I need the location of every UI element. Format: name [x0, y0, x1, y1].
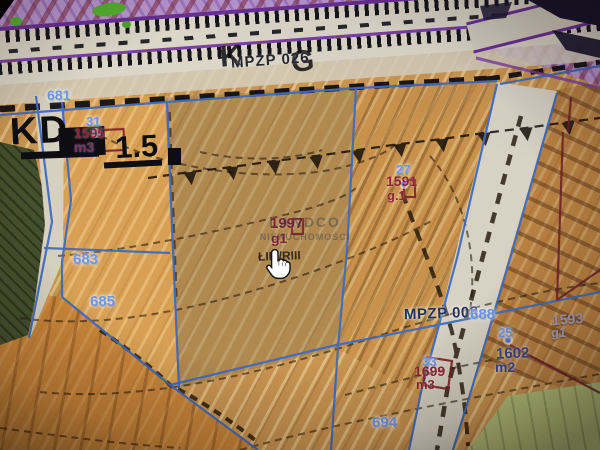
- annotation-1591: 1591: [386, 174, 417, 188]
- point-number-25: 25: [498, 326, 512, 339]
- annotation-1699: 1699: [414, 364, 445, 378]
- watermark-line2: NIERUCHOMOŚCI: [235, 232, 375, 242]
- road-label-kd: KD: [9, 110, 70, 151]
- annotation-m2: m2: [495, 360, 515, 374]
- annotation-g1-c: g1: [551, 326, 566, 339]
- watermark-line1: LANDCO: [235, 214, 375, 230]
- annotation-m3-a: m3: [74, 140, 94, 154]
- road-label-kd-value: 1.5: [114, 130, 159, 163]
- parcel-number-685: 685: [90, 294, 115, 309]
- map-canvas[interactable]: K G MPZP 026 681 KD 1.5 31 1595 m3 683 6…: [0, 0, 600, 450]
- hand-pointer-cursor-icon: [265, 248, 291, 280]
- plan-label-mpzp-008: MPZP 008: [404, 305, 479, 323]
- parcel-number-681: 681: [47, 88, 70, 102]
- parcel-number-694: 694: [372, 415, 397, 430]
- annotation-m3-b: m3: [416, 378, 435, 391]
- annotation-g1-b: g.1: [387, 189, 406, 202]
- parcel-number-688: 688: [470, 307, 495, 322]
- annotation-1595: 1595: [74, 126, 105, 140]
- parcel-number-683: 683: [73, 252, 98, 267]
- watermark: LANDCO NIERUCHOMOŚCI: [235, 214, 375, 242]
